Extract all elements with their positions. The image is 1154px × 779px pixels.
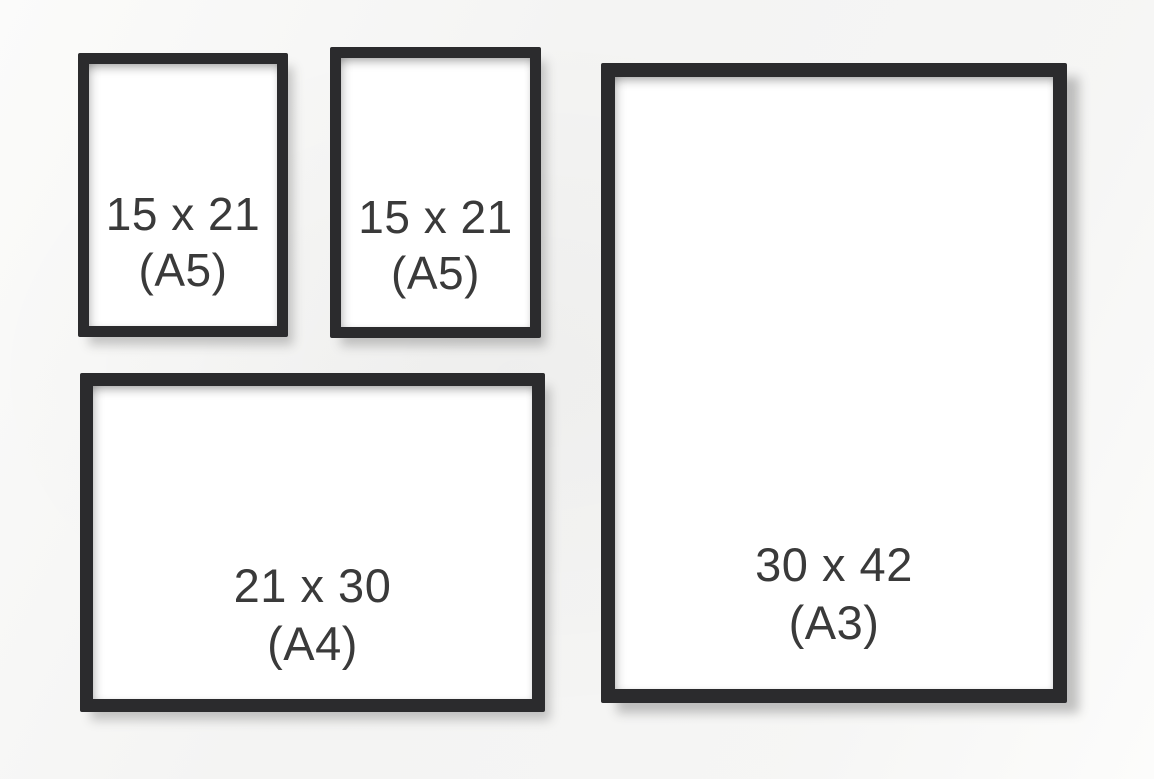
format-label: (A4) xyxy=(93,615,532,672)
frame-a5-center-caption: 15 x 21 (A5) xyxy=(341,189,530,301)
frame-size-comparison-image: 15 x 21 (A5) 15 x 21 (A5) 21 x 30 (A4) 3… xyxy=(0,0,1154,779)
size-label: 30 x 42 xyxy=(615,536,1053,593)
frame-a5-left: 15 x 21 (A5) xyxy=(78,53,288,337)
frame-a4-caption: 21 x 30 (A4) xyxy=(93,557,532,672)
size-label: 15 x 21 xyxy=(341,189,530,245)
format-label: (A5) xyxy=(341,245,530,301)
frame-a3-caption: 30 x 42 (A3) xyxy=(615,536,1053,651)
format-label: (A3) xyxy=(615,594,1053,651)
frame-a3-large: 30 x 42 (A3) xyxy=(601,63,1067,703)
format-label: (A5) xyxy=(89,242,277,298)
size-label: 21 x 30 xyxy=(93,557,532,614)
frame-a5-left-caption: 15 x 21 (A5) xyxy=(89,186,277,298)
size-label: 15 x 21 xyxy=(89,186,277,242)
frame-a4-landscape: 21 x 30 (A4) xyxy=(80,373,545,712)
frame-a5-center: 15 x 21 (A5) xyxy=(330,47,541,338)
